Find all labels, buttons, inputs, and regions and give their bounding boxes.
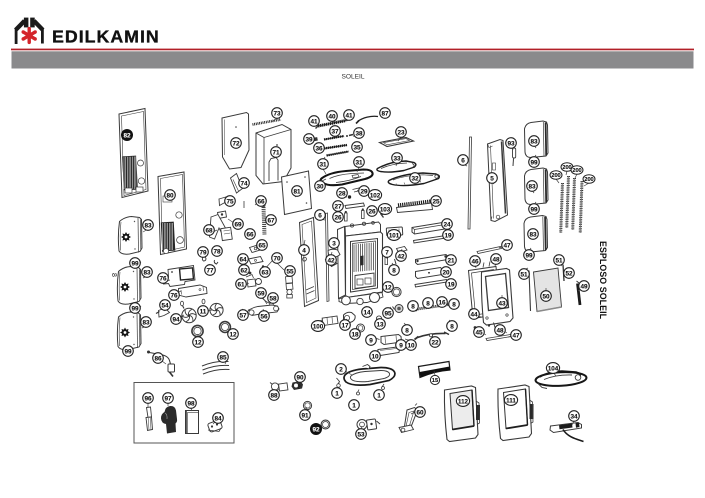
svg-text:22: 22 (431, 339, 439, 346)
svg-text:45: 45 (475, 329, 483, 336)
svg-text:101: 101 (389, 232, 400, 239)
svg-text:98: 98 (187, 400, 195, 407)
svg-text:12: 12 (384, 284, 392, 291)
svg-text:73: 73 (273, 110, 281, 117)
svg-text:57: 57 (239, 312, 247, 319)
svg-text:44: 44 (470, 311, 478, 318)
svg-text:83: 83 (144, 222, 152, 229)
svg-text:86: 86 (154, 355, 162, 362)
svg-text:35: 35 (353, 144, 361, 151)
svg-text:102: 102 (370, 192, 381, 199)
svg-text:104: 104 (548, 365, 559, 372)
svg-text:6: 6 (461, 157, 465, 164)
svg-text:200: 200 (551, 173, 560, 179)
svg-text:72: 72 (232, 140, 240, 147)
svg-text:200: 200 (584, 177, 593, 183)
svg-text:66: 66 (246, 231, 254, 238)
svg-text:64: 64 (239, 256, 247, 263)
svg-text:ESPLOSO SOLEIL: ESPLOSO SOLEIL (598, 241, 608, 320)
svg-text:37: 37 (331, 128, 339, 135)
svg-text:103: 103 (380, 206, 391, 213)
svg-text:111: 111 (506, 397, 516, 404)
svg-text:1: 1 (377, 392, 381, 399)
svg-text:12: 12 (229, 331, 237, 338)
svg-text:8: 8 (392, 267, 396, 274)
svg-text:66: 66 (257, 198, 265, 205)
svg-text:28: 28 (338, 190, 346, 197)
svg-text:31: 31 (319, 161, 327, 168)
svg-text:84: 84 (214, 415, 222, 422)
svg-text:42: 42 (327, 257, 335, 264)
svg-text:68: 68 (205, 227, 213, 234)
svg-text:83: 83 (142, 319, 150, 326)
svg-text:25: 25 (432, 198, 440, 205)
svg-text:8: 8 (450, 323, 454, 330)
svg-text:54: 54 (161, 302, 169, 309)
svg-text:65: 65 (258, 242, 266, 249)
svg-text:41: 41 (310, 118, 318, 125)
svg-text:42: 42 (397, 253, 405, 260)
svg-text:50: 50 (542, 293, 550, 300)
svg-text:93: 93 (507, 140, 515, 147)
svg-text:16: 16 (438, 299, 446, 306)
svg-text:69: 69 (234, 221, 242, 228)
svg-text:53: 53 (357, 431, 365, 438)
svg-text:14: 14 (363, 309, 371, 316)
svg-text:85: 85 (219, 354, 227, 361)
svg-text:48: 48 (496, 327, 504, 334)
svg-text:26: 26 (334, 214, 342, 221)
svg-text:92: 92 (312, 426, 320, 433)
svg-text:30: 30 (316, 183, 324, 190)
svg-text:38: 38 (355, 130, 363, 137)
svg-text:79: 79 (199, 249, 207, 256)
svg-text:56: 56 (260, 313, 268, 320)
svg-text:17: 17 (341, 322, 349, 329)
svg-text:10: 10 (371, 353, 379, 360)
svg-text:SOLEIL: SOLEIL (341, 74, 364, 81)
svg-text:2: 2 (298, 385, 301, 391)
svg-text:2: 2 (339, 366, 343, 373)
svg-text:8: 8 (411, 303, 415, 310)
svg-text:87: 87 (381, 110, 389, 117)
svg-text:62: 62 (240, 267, 248, 274)
svg-text:95: 95 (384, 310, 392, 317)
svg-text:4: 4 (302, 247, 306, 254)
svg-text:46: 46 (471, 258, 479, 265)
svg-text:82: 82 (123, 132, 131, 139)
svg-text:97: 97 (164, 395, 172, 402)
svg-text:23: 23 (397, 129, 405, 136)
svg-text:200: 200 (562, 165, 571, 171)
svg-text:EDILKAMIN: EDILKAMIN (52, 27, 160, 47)
svg-text:8: 8 (426, 300, 430, 307)
svg-text:51: 51 (555, 257, 563, 264)
svg-text:27: 27 (334, 203, 342, 210)
svg-text:47: 47 (503, 242, 511, 249)
svg-text:83: 83 (528, 183, 536, 190)
svg-text:200: 200 (572, 168, 581, 174)
svg-text:76: 76 (170, 292, 178, 299)
svg-text:99: 99 (131, 305, 139, 312)
svg-text:26: 26 (368, 208, 376, 215)
svg-text:75: 75 (226, 198, 234, 205)
svg-text:99: 99 (530, 159, 538, 166)
svg-text:1: 1 (335, 390, 339, 397)
svg-text:43: 43 (498, 300, 506, 307)
svg-text:18: 18 (351, 331, 359, 338)
svg-text:10: 10 (407, 342, 415, 349)
svg-text:48: 48 (492, 256, 500, 263)
svg-text:20: 20 (442, 269, 450, 276)
svg-text:90: 90 (296, 374, 304, 381)
svg-text:8: 8 (405, 327, 409, 334)
svg-text:47: 47 (512, 332, 520, 339)
svg-text:99: 99 (124, 348, 132, 355)
svg-text:52: 52 (565, 270, 573, 277)
svg-text:59: 59 (257, 290, 265, 297)
svg-text:9: 9 (369, 337, 373, 344)
svg-text:55: 55 (286, 268, 294, 275)
svg-text:83: 83 (529, 231, 537, 238)
svg-text:41: 41 (345, 112, 353, 119)
svg-text:83: 83 (530, 138, 538, 145)
svg-text:39: 39 (305, 136, 313, 143)
svg-text:61: 61 (237, 281, 245, 288)
svg-text:71: 71 (272, 149, 280, 156)
svg-text:3: 3 (332, 240, 336, 247)
svg-text:29: 29 (360, 188, 368, 195)
svg-text:21: 21 (447, 257, 455, 264)
svg-text:49: 49 (580, 283, 588, 290)
svg-text:24: 24 (443, 221, 451, 228)
svg-text:1: 1 (352, 402, 356, 409)
svg-text:63: 63 (261, 269, 269, 276)
svg-text:8: 8 (452, 301, 456, 308)
svg-text:7: 7 (385, 249, 389, 256)
svg-text:78: 78 (213, 248, 221, 255)
svg-text:31: 31 (355, 159, 363, 166)
svg-text:15: 15 (432, 378, 439, 384)
svg-text:11: 11 (200, 308, 207, 315)
svg-text:6: 6 (318, 212, 322, 219)
svg-text:96: 96 (144, 395, 152, 402)
svg-text:77: 77 (206, 267, 214, 274)
svg-text:80: 80 (166, 192, 174, 199)
svg-text:58: 58 (269, 295, 277, 302)
svg-text:112: 112 (458, 398, 469, 405)
svg-text:40: 40 (328, 113, 336, 120)
svg-text:67: 67 (267, 217, 275, 224)
svg-text:60: 60 (416, 409, 424, 416)
svg-text:81: 81 (293, 188, 301, 195)
svg-text:32: 32 (411, 175, 419, 182)
svg-text:70: 70 (273, 255, 281, 262)
svg-text:91: 91 (301, 412, 309, 419)
svg-text:13: 13 (376, 321, 384, 328)
svg-text:94: 94 (172, 316, 180, 323)
svg-text:83: 83 (143, 269, 151, 276)
svg-text:76: 76 (159, 275, 167, 282)
svg-text:9: 9 (399, 342, 403, 349)
svg-text:5: 5 (490, 175, 494, 182)
svg-text:100: 100 (313, 323, 324, 330)
svg-text:99: 99 (131, 260, 139, 267)
svg-text:8: 8 (110, 273, 117, 277)
svg-text:36: 36 (315, 145, 323, 152)
svg-text:88: 88 (270, 392, 278, 399)
svg-text:51: 51 (520, 271, 528, 278)
svg-text:34: 34 (570, 413, 578, 420)
svg-text:99: 99 (525, 252, 533, 259)
svg-text:99: 99 (530, 206, 538, 213)
svg-text:33: 33 (393, 155, 401, 162)
svg-text:19: 19 (447, 281, 455, 288)
svg-text:74: 74 (240, 180, 248, 187)
svg-text:12: 12 (194, 339, 202, 346)
svg-text:19: 19 (444, 232, 452, 239)
